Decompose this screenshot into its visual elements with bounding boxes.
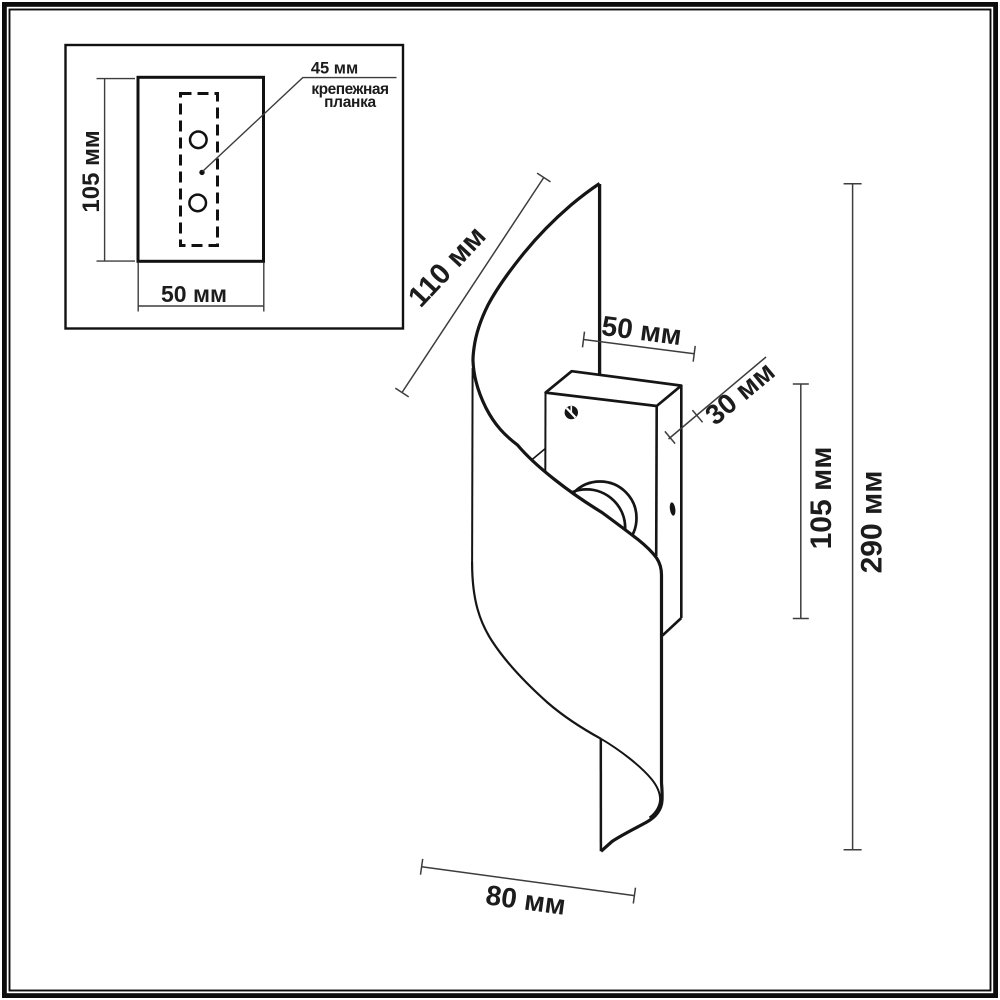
svg-text:планка: планка <box>324 94 376 111</box>
svg-text:105 мм: 105 мм <box>805 447 838 550</box>
svg-text:105 мм: 105 мм <box>78 130 105 212</box>
svg-text:45 мм: 45 мм <box>311 59 358 77</box>
svg-text:290 мм: 290 мм <box>856 471 889 574</box>
svg-text:50 мм: 50 мм <box>161 281 227 307</box>
